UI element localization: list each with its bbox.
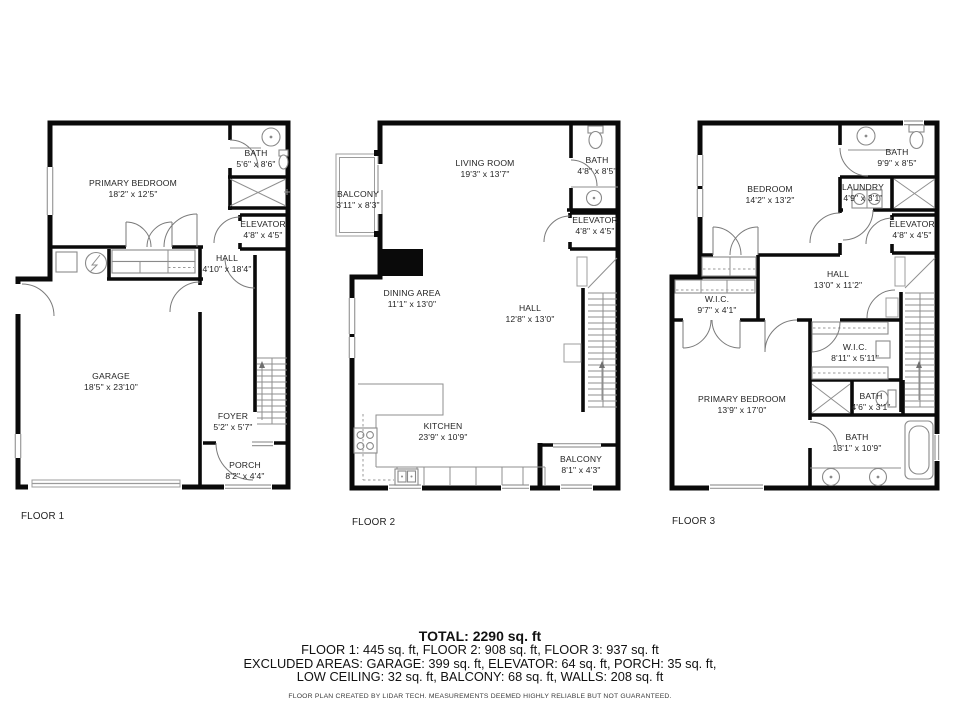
room-label: FOYER (218, 411, 248, 421)
room-label: BATH (886, 147, 909, 157)
room-label: BEDROOM (747, 184, 792, 194)
room-dims: 8'2" x 4'4" (225, 471, 264, 481)
room-label: KITCHEN (424, 421, 463, 431)
room-label: ELEVATOR (889, 219, 935, 229)
room-label: HALL (827, 269, 849, 279)
room-dims: 5'2" x 5'7" (213, 422, 252, 432)
floor1-stairs (257, 358, 287, 424)
room-label: LIVING ROOM (456, 158, 515, 168)
room-label: PRIMARY BEDROOM (89, 178, 177, 188)
floor-plan-page: PRIMARY BEDROOM 18'2" x 12'5" BATH 5'6" … (0, 0, 960, 720)
room-dims: 8'11" x 5'11" (831, 353, 879, 363)
room-label: BALCONY (560, 454, 602, 464)
room-dims: 5'6" x 8'6" (236, 159, 275, 169)
room-label: BATH (860, 391, 883, 401)
floor-3-plan: BEDROOM 14'2" x 13'2" BATH 9'9" x 8'5" L… (672, 118, 941, 527)
room-label: W.I.C. (705, 294, 729, 304)
room-dims: 4'8" x 4'5" (243, 230, 282, 240)
room-dims: 4'8" x 8'5" (577, 166, 616, 176)
room-dims: 19'3" x 13'7" (460, 169, 509, 179)
excluded-areas-text-2: LOW CEILING: 32 sq. ft, BALCONY: 68 sq. … (0, 670, 960, 684)
room-label: GARAGE (92, 371, 130, 381)
room-dims: 13'1" x 10'9" (832, 443, 881, 453)
room-dims: 23'9" x 10'9" (418, 432, 467, 442)
room-dims: 4'8" x 4'5" (892, 230, 931, 240)
room-dims: 4'6" x 3'1" (851, 402, 890, 412)
room-label: BATH (245, 148, 268, 158)
room-label: ELEVATOR (240, 219, 286, 229)
room-label: ELEVATOR (572, 215, 618, 225)
floor2-stairs (564, 257, 617, 407)
room-dims: 11'1" x 13'0" (388, 299, 436, 309)
room-dims: 13'9" x 17'0" (717, 405, 766, 415)
room-dims: 4'9" x 3'1" (843, 193, 882, 203)
floor-1-plan: PRIMARY BEDROOM 18'2" x 12'5" BATH 5'6" … (13, 121, 290, 522)
room-dims: 3'11" x 8'3" (336, 200, 380, 210)
room-label: W.I.C. (843, 342, 867, 352)
floor-2-label: FLOOR 2 (352, 517, 395, 528)
room-dims: 12'8" x 13'0" (505, 314, 554, 324)
room-dims: 9'7" x 4'1" (697, 305, 736, 315)
room-dims: 14'2" x 13'2" (745, 195, 794, 205)
room-dims: 18'5" x 23'10" (84, 382, 138, 392)
floor2-wall-block (378, 249, 423, 276)
disclaimer-text: FLOOR PLAN CREATED BY LIDAR TECH. MEASUR… (0, 693, 960, 700)
room-label: BATH (586, 155, 609, 165)
floor3-stairs (886, 257, 935, 407)
room-label: HALL (216, 253, 238, 263)
room-label: DINING AREA (383, 288, 440, 298)
room-label: PORCH (229, 460, 261, 470)
room-dims: 4'8" x 4'5" (575, 226, 614, 236)
room-dims: 18'2" x 12'5" (108, 189, 157, 199)
water-heater-icon (86, 253, 107, 274)
floor-plans-drawing: PRIMARY BEDROOM 18'2" x 12'5" BATH 5'6" … (0, 0, 960, 720)
total-area-text: TOTAL: 2290 sq. ft (0, 629, 960, 643)
room-label: BALCONY (337, 189, 379, 199)
floor1-utility-fixtures (56, 250, 195, 274)
stairs-newel (886, 298, 898, 317)
floor-2-plan: LIVING ROOM 19'3" x 13'7" BALCONY 3'11" … (336, 121, 618, 528)
floor-areas-text: FLOOR 1: 445 sq. ft, FLOOR 2: 908 sq. ft… (0, 643, 960, 657)
room-label: BATH (846, 432, 869, 442)
excluded-areas-text-1: EXCLUDED AREAS: GARAGE: 399 sq. ft, ELEV… (0, 657, 960, 671)
room-label: HALL (519, 303, 541, 313)
stairs-newel (564, 344, 581, 362)
room-dims: 4'10" x 18'4" (202, 264, 251, 274)
stove-icon (354, 428, 377, 453)
room-label: LAUNDRY (842, 182, 884, 192)
room-dims: 13'0" x 11'2" (814, 280, 862, 290)
room-dims: 9'9" x 8'5" (877, 158, 916, 168)
room-label: PRIMARY BEDROOM (698, 394, 786, 404)
floor1-closet-x (230, 179, 290, 206)
floor-1-label: FLOOR 1 (21, 511, 64, 522)
floor-3-label: FLOOR 3 (672, 516, 716, 527)
area-summary: TOTAL: 2290 sq. ft FLOOR 1: 445 sq. ft, … (0, 629, 960, 700)
room-dims: 8'1" x 4'3" (561, 465, 600, 475)
